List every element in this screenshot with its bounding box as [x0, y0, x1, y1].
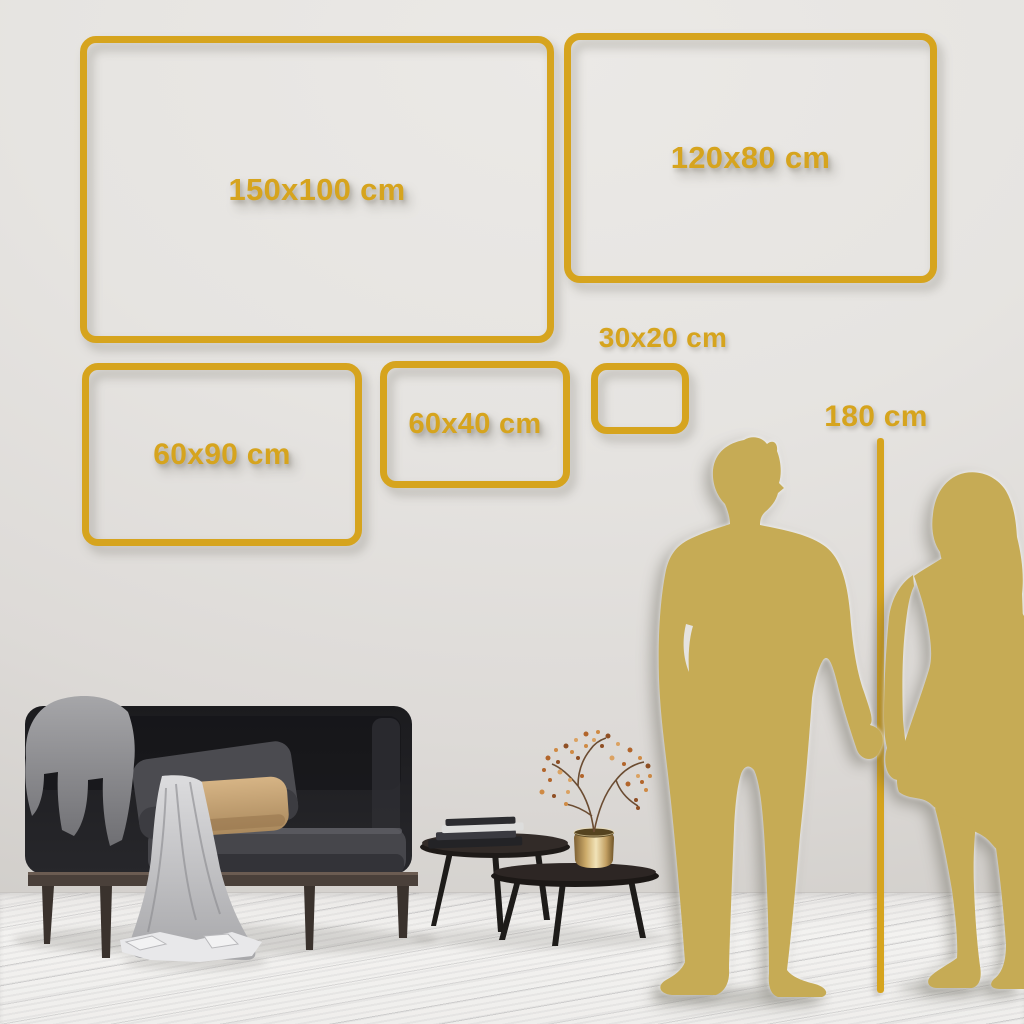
brass-vase [574, 828, 614, 868]
size-label-120x80: 120x80 cm [671, 140, 831, 176]
couple-silhouettes [640, 430, 1024, 1010]
dried-flower-branch [540, 730, 653, 832]
size-label-60x40: 60x40 cm [408, 408, 541, 441]
woman-right-leg [991, 848, 1024, 989]
woman-left-leg [928, 808, 981, 988]
size-label-30x20: 30x20 cm [573, 322, 753, 354]
furniture-scene [0, 688, 680, 988]
size-frame-60x40: 60x40 cm [380, 361, 570, 488]
size-frame-120x80: 120x80 cm [564, 33, 937, 283]
man-silhouette [659, 437, 883, 997]
floor-shadows [13, 925, 668, 970]
size-frame-150x100: 150x100 cm [80, 36, 554, 343]
size-frame-30x20 [591, 363, 689, 434]
height-label-180cm: 180 cm [786, 400, 966, 434]
size-frame-60x90: 60x90 cm [82, 363, 362, 546]
size-label-60x90: 60x90 cm [153, 438, 291, 472]
size-label-150x100: 150x100 cm [228, 172, 405, 208]
size-guide-scene: 150x100 cm 120x80 cm 60x90 cm 60x40 cm 3… [0, 0, 1024, 1024]
books [427, 816, 524, 848]
blossoms [540, 730, 653, 810]
